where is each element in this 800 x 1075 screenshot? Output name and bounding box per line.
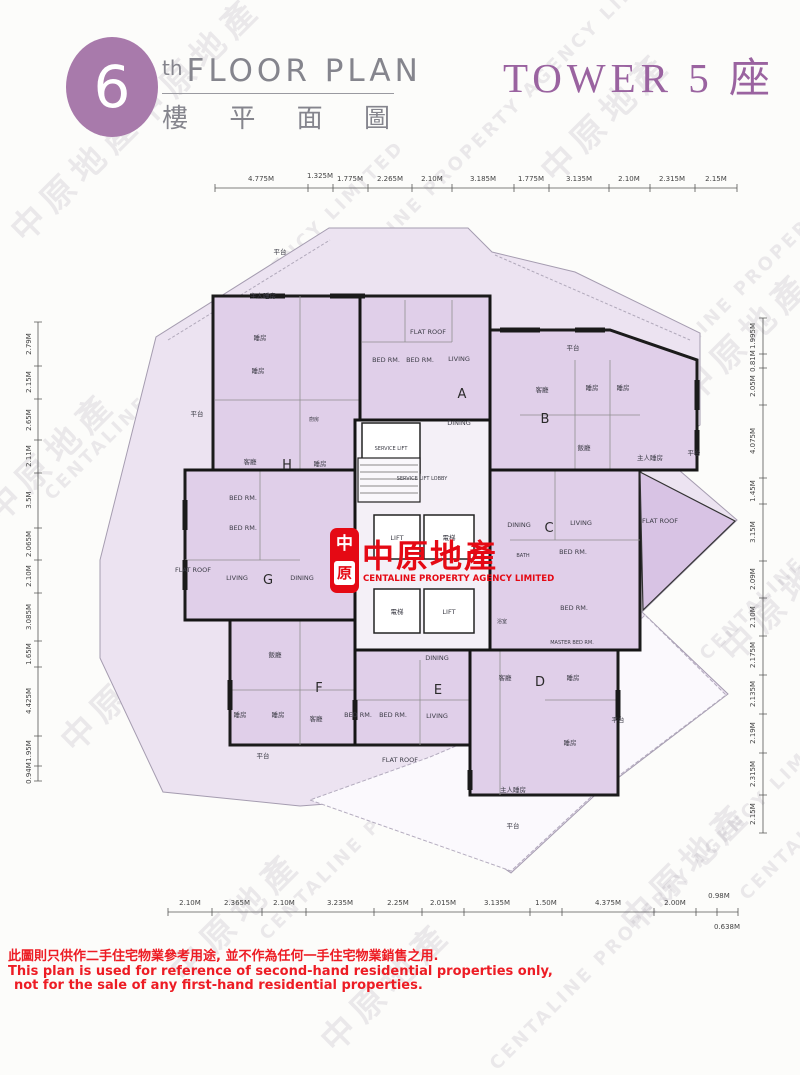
dim-bottom: 0.98M (708, 892, 730, 900)
floor-number-badge: 6 (66, 37, 158, 137)
terrace-label: 平台 (688, 448, 701, 457)
dim-right: 2.135M (749, 681, 757, 707)
dim-left: 2.15M (25, 371, 33, 393)
label-service-lift-lobby: SERVICE LIFT LOBBY (397, 476, 448, 482)
seal-char-top: 中 (336, 536, 353, 553)
title-en: FLOOR PLAN (187, 53, 422, 89)
room-label: BED RM. (379, 711, 407, 719)
dim-bottom: 2.015M (430, 899, 456, 907)
dim-bottom: 2.10M (179, 899, 201, 907)
centaline-name-zh: 中原地產 (362, 531, 498, 577)
dim-left: 2.79M (25, 333, 33, 355)
room-label: 飯廳 (578, 443, 592, 452)
room-label: LIVING (426, 712, 448, 720)
dim-top: 1.325M (307, 172, 333, 180)
room-label: 主人睡房 (500, 785, 526, 794)
centaline-seal-logo: 中 原 (330, 528, 359, 593)
unit-letter-b: B (541, 412, 550, 427)
room-label: LIVING (226, 574, 248, 582)
room-label: DINING (290, 574, 314, 582)
disclaimer-line-en1: This plan is used for reference of secon… (8, 965, 553, 980)
unit-letter-h: H (282, 458, 292, 473)
dim-bottom: 3.135M (484, 899, 510, 907)
dim-top: 1.775M (518, 175, 544, 183)
room-label: BED RM. (560, 604, 588, 612)
room-label: LIVING (448, 355, 470, 363)
dim-left: 2.65M (25, 409, 33, 431)
disclaimer: 此圖則只供作二手住宅物業參考用途, 並不作為任何一手住宅物業銷售之用. This… (8, 950, 553, 994)
room-label: 睡房 (567, 673, 580, 682)
floor-plan-title-en: thFLOOR PLAN (162, 53, 422, 89)
dim-right: 2.09M (749, 568, 757, 590)
flat-roof-label: FLAT ROOF (642, 517, 678, 525)
dim-top: 2.265M (377, 175, 403, 183)
flat-roof-label: FLAT ROOF (175, 566, 211, 574)
unit-letter-c: C (544, 521, 553, 536)
kitchen-label: 廚房 (309, 416, 319, 423)
dim-left: 2.065M (25, 531, 33, 557)
room-label: 睡房 (234, 710, 247, 719)
dim-top: 2.10M (618, 175, 640, 183)
label-lift: LIFT (442, 608, 455, 616)
label-lift-zh: 電梯 (391, 607, 405, 616)
room-label: BED RM. (559, 548, 587, 556)
dim-top: 2.10M (421, 175, 443, 183)
room-label: BED RM. (344, 711, 372, 719)
room-label: 客廳 (499, 673, 513, 682)
room-label: 睡房 (252, 366, 265, 375)
room-label: DINING (447, 419, 471, 427)
dim-right: 2.05M (749, 375, 757, 397)
unit-letter-e: E (434, 683, 442, 698)
dim-top: 4.775M (248, 175, 274, 183)
terrace-label: 平台 (191, 409, 204, 418)
dim-bottom: 2.10M (273, 899, 295, 907)
dim-top: 1.775M (337, 175, 363, 183)
dim-top: 3.135M (566, 175, 592, 183)
dim-bottom: 3.235M (327, 899, 353, 907)
room-label: 睡房 (617, 383, 630, 392)
dim-left: 0.94M (25, 762, 33, 784)
terrace-label: 平台 (507, 821, 520, 830)
unit-letter-g: G (263, 573, 273, 588)
room-label: 睡房 (564, 738, 577, 747)
dim-right: 2.315M (749, 761, 757, 787)
terrace-label: 平台 (257, 751, 270, 760)
dim-top: 3.185M (470, 175, 496, 183)
dim-left: 3.085M (25, 604, 33, 630)
unit-letter-a: A (458, 387, 467, 402)
dim-right: 4.075M (749, 428, 757, 454)
room-label: 客廳 (310, 714, 324, 723)
dim-top: 2.315M (659, 175, 685, 183)
dim-right: 2.10M (749, 606, 757, 628)
room-label: 主人睡房 (637, 453, 663, 462)
dim-bottom-extra: 0.638M (714, 923, 740, 931)
seal-char-bottom-box: 原 (334, 561, 355, 585)
floor-number: 6 (94, 58, 131, 116)
unit-letter-f: F (315, 681, 322, 696)
bath-label: 浴室 (497, 618, 507, 625)
dim-left: 1.65M (25, 643, 33, 665)
dim-bottom: 2.00M (664, 899, 686, 907)
room-label: 睡房 (272, 710, 285, 719)
tower-label: TOWER 5 座 (503, 44, 775, 104)
dim-left: 3.5M (25, 491, 33, 508)
floor-plan-title-zh: 樓 平 面 圖 (162, 98, 390, 135)
dim-top: 2.15M (705, 175, 727, 183)
disclaimer-line-en2: not for the sale of any first-hand resid… (14, 979, 553, 994)
room-label: 主人睡房 (250, 291, 276, 300)
dim-right: 2.15M (749, 803, 757, 825)
room-label: BED RM. (229, 494, 257, 502)
room-label: 客廳 (244, 457, 258, 466)
room-label: DINING (425, 654, 449, 662)
room-label: 飯廳 (269, 650, 283, 659)
label-service-lift: SERVICE LIFT (375, 446, 409, 452)
disclaimer-line-zh: 此圖則只供作二手住宅物業參考用途, 並不作為任何一手住宅物業銷售之用. (8, 950, 553, 965)
dim-left: 4.425M (25, 688, 33, 714)
seal-char-bottom: 原 (337, 566, 352, 581)
dim-right: 1.995M (749, 323, 757, 349)
dim-bottom: 2.25M (387, 899, 409, 907)
title-divider (162, 93, 394, 94)
room-label: DINING (507, 521, 531, 529)
room-label: 睡房 (586, 383, 599, 392)
room-label: 睡房 (254, 333, 267, 342)
room-label: 睡房 (314, 459, 327, 468)
dim-bottom: 2.365M (224, 899, 250, 907)
dim-left: 1.95M (25, 740, 33, 762)
room-label: 客廳 (536, 385, 550, 394)
terrace-label: 平台 (612, 715, 625, 724)
room-label: MASTER BED RM. (550, 640, 594, 646)
room-label: BED RM. (406, 356, 434, 364)
dim-right: 2.175M (749, 642, 757, 668)
dim-left: 2.11M (25, 445, 33, 467)
dim-right: 2.19M (749, 722, 757, 744)
room-label: BED RM. (372, 356, 400, 364)
dim-bottom: 1.50M (535, 899, 557, 907)
dim-left: 2.10M (25, 565, 33, 587)
floor-suffix: th (162, 56, 183, 80)
floor-plan-canvas: SERVICE LIFT SERVICE LIFT LOBBY LIFT 電梯 … (0, 0, 800, 1002)
terrace-label: 平台 (567, 343, 580, 352)
flat-roof-label: FLAT ROOF (410, 328, 446, 336)
dim-bottom: 4.375M (595, 899, 621, 907)
flat-roof-label: FLAT ROOF (382, 756, 418, 764)
room-label: LIVING (570, 519, 592, 527)
room-label: BED RM. (229, 524, 257, 532)
terrace-label: 平台 (274, 247, 287, 256)
dim-right: 0.81M (749, 350, 757, 372)
dim-right: 3.15M (749, 521, 757, 543)
bath-label: BATH (516, 553, 530, 559)
dim-right: 1.45M (749, 480, 757, 502)
unit-letter-d: D (535, 675, 545, 690)
centaline-name-en: CENTALINE PROPERTY AGENCY LIMITED (363, 574, 554, 584)
